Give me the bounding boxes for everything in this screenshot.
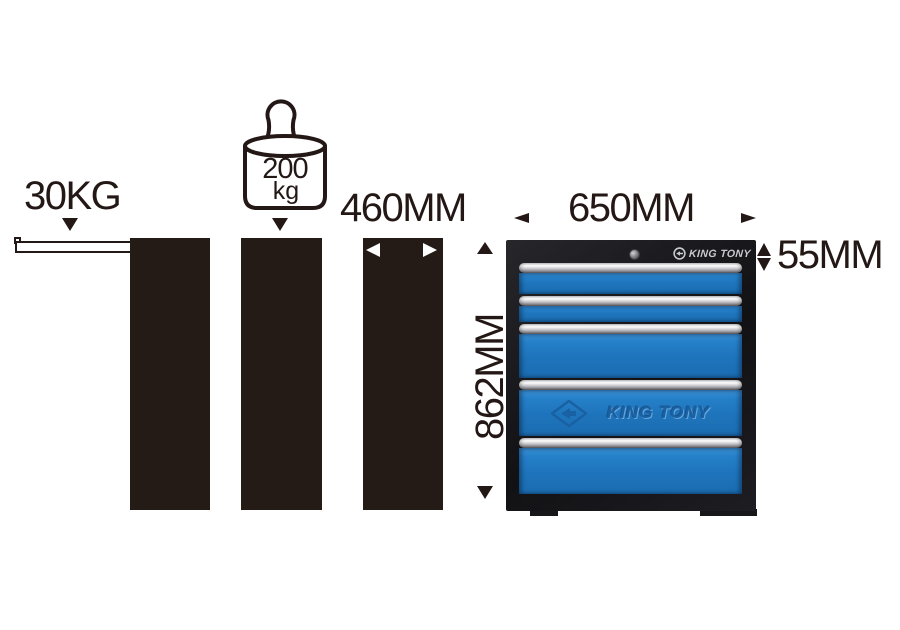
arrow-left-icon: [366, 243, 380, 257]
arrow-right-icon: [741, 213, 756, 223]
lock-icon: [629, 249, 640, 260]
silhouette-total-load: [241, 238, 322, 510]
drawer-front: [519, 334, 742, 378]
drawer-front: [519, 448, 742, 494]
tool-cabinet: KING TONY KING TONY: [506, 240, 756, 511]
emboss-logo: KING TONY: [551, 400, 710, 427]
arrow-left-icon: [514, 213, 529, 223]
arrow-down-icon: [62, 218, 78, 231]
silhouette-drawer-load: [130, 238, 210, 510]
cabinet-drawer-1: [519, 263, 742, 294]
width-label: 650MM: [568, 188, 694, 228]
arrow-down-icon: [272, 218, 288, 231]
drawer-load-label: 30KG: [24, 176, 120, 216]
weight-icon: 200 kg: [235, 95, 335, 220]
cabinet-drawer-2: [519, 296, 742, 322]
arrow-up-icon: [757, 243, 771, 256]
cabinet-drawers: KING TONY: [519, 263, 742, 494]
height-label: 862MM: [470, 314, 510, 440]
silhouette-depth: [363, 238, 443, 510]
king-tony-diamond-icon: [551, 400, 587, 427]
drawer-handle: [519, 263, 742, 273]
width-label-wrap: 650MM: [506, 188, 756, 228]
spec-diagram: 30KG 200 kg 460MM 650MM 862MM 55MM: [0, 0, 900, 630]
depth-label: 460MM: [340, 188, 466, 228]
drawer-front: [519, 273, 742, 294]
total-load-unit: kg: [273, 177, 299, 205]
king-tony-gear-icon: [673, 247, 686, 260]
cabinet-drawer-4: KING TONY: [519, 380, 742, 436]
drawer-height-label: 55MM: [777, 235, 882, 275]
brand-badge: KING TONY: [673, 247, 751, 260]
drawer-front: [519, 306, 742, 322]
emboss-logo-text: KING TONY: [607, 403, 710, 423]
drawer-handle: [519, 380, 742, 390]
brand-badge-text: KING TONY: [689, 248, 752, 260]
arrow-down-icon: [757, 258, 771, 271]
drawer-front: KING TONY: [519, 390, 742, 436]
drawer-handle: [519, 296, 742, 306]
cabinet-drawer-5: [519, 438, 742, 494]
arrow-right-icon: [423, 243, 437, 257]
arrow-up-icon: [477, 242, 493, 254]
drawer-handle: [519, 324, 742, 334]
arrow-down-icon: [477, 486, 493, 499]
drawer-handle: [519, 438, 742, 448]
cabinet-drawer-3: [519, 324, 742, 378]
extended-drawer: [15, 241, 132, 253]
